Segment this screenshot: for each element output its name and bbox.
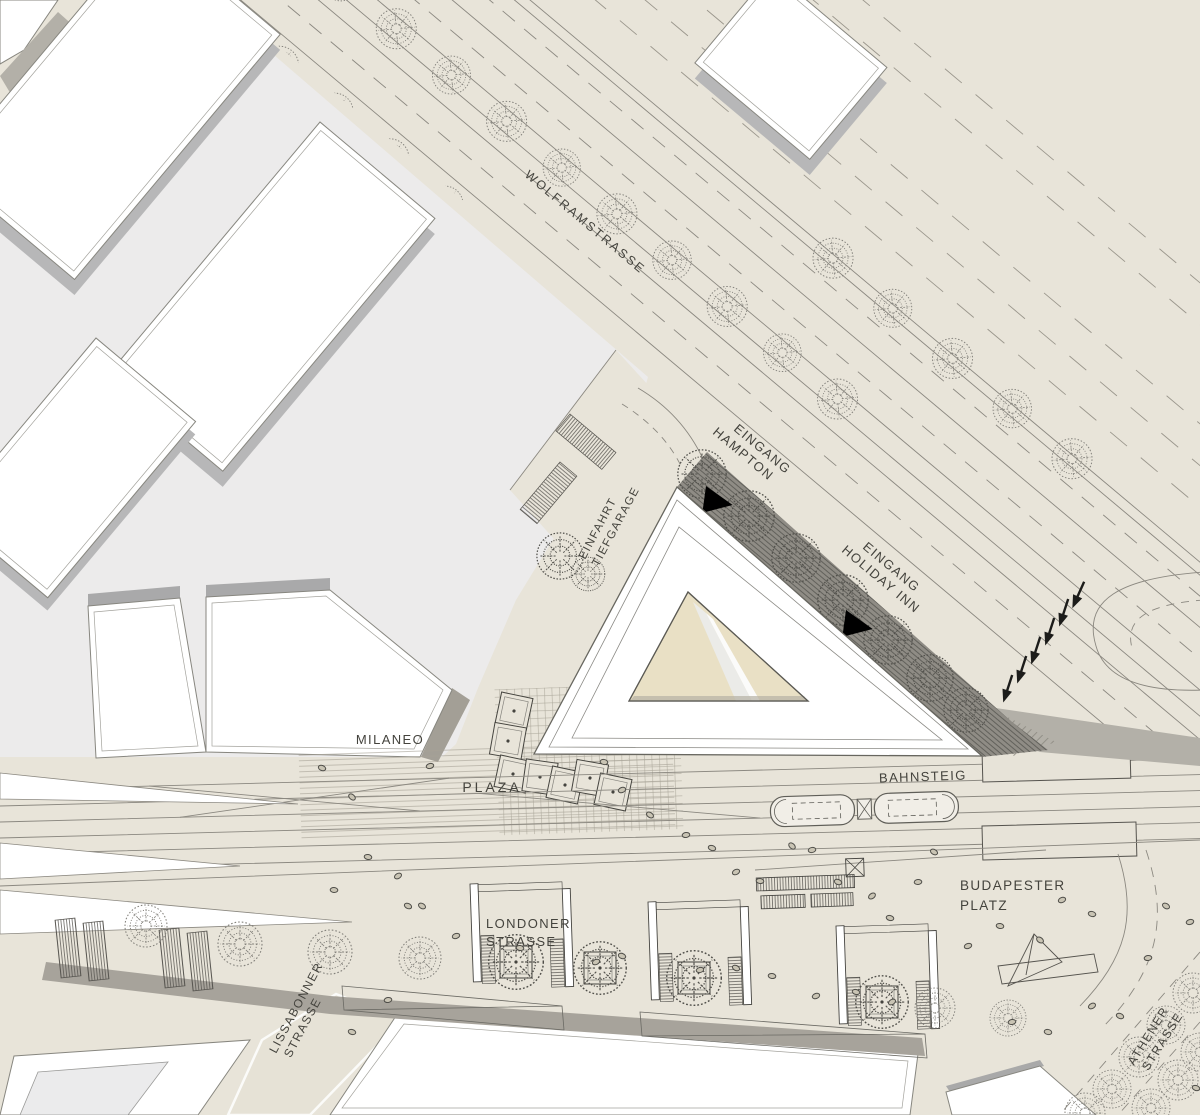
- area-label-plaza: PLAZA: [462, 779, 521, 795]
- site-plan: WOLFRAMSTRASSE EINGANG HAMPTON EINGANG H…: [0, 0, 1200, 1115]
- area-label-budapester-line2: PLATZ: [960, 898, 1008, 913]
- platform-label-bahnsteig: BAHNSTEIG: [879, 767, 967, 785]
- building-label-milaneo: MILANEO: [356, 732, 424, 747]
- street-label-londoner-line2: STRASSE: [486, 934, 556, 949]
- area-label-budapester-line1: BUDAPESTER: [960, 878, 1066, 893]
- street-label-londoner-line1: LONDONER: [486, 916, 571, 931]
- platform-block-2: [982, 822, 1137, 860]
